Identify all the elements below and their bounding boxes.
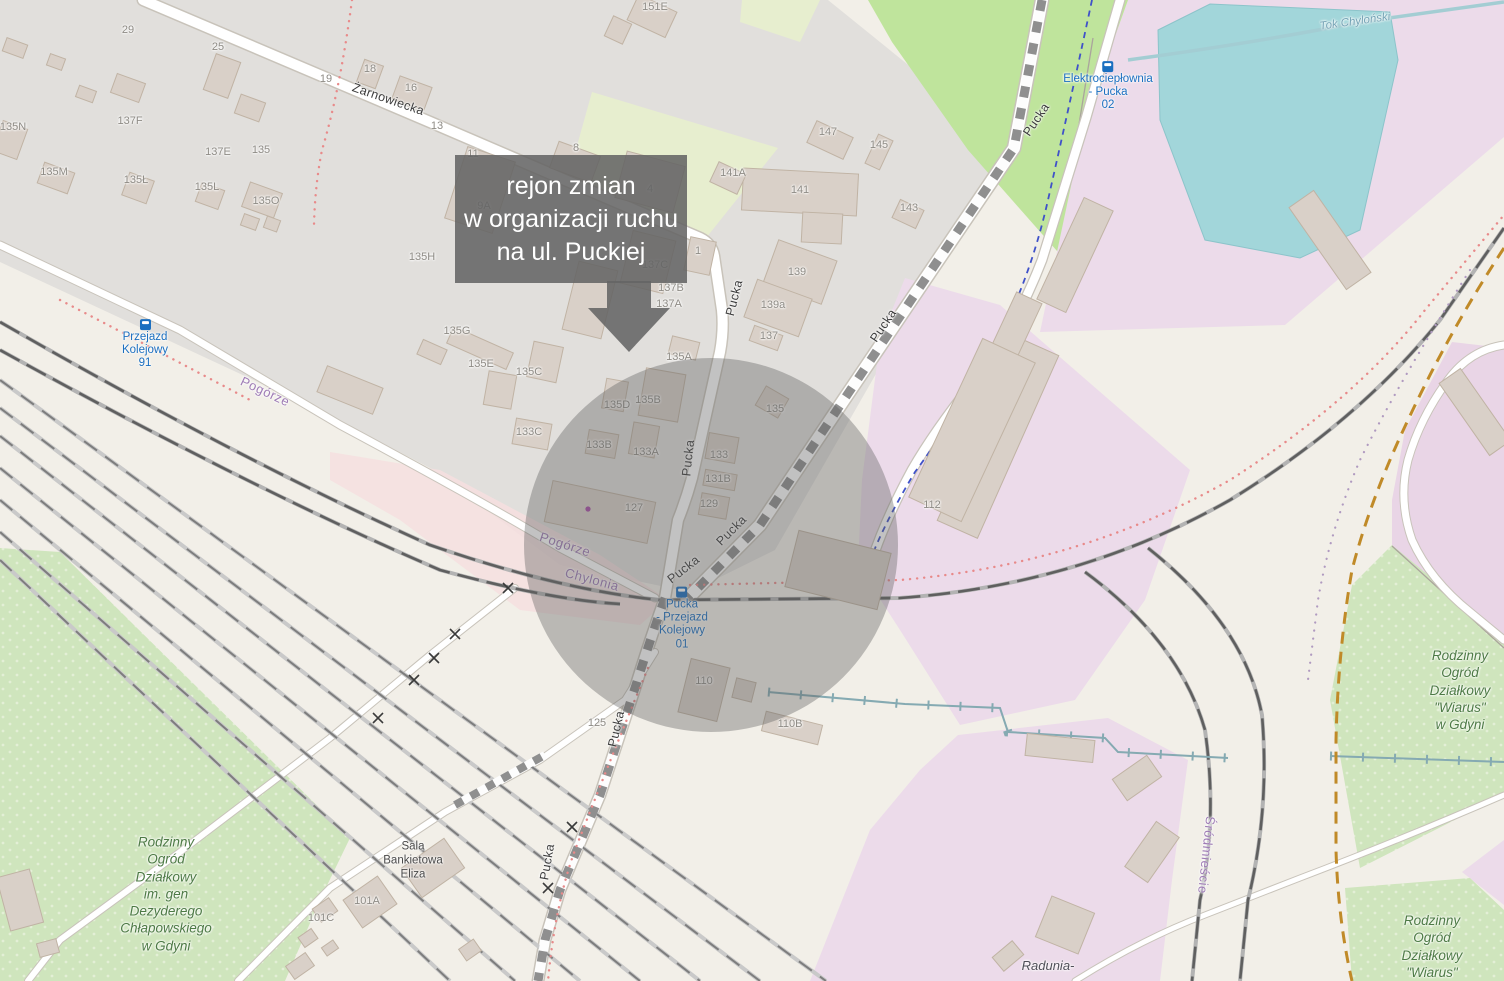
annotation-box: rejon zmian w organizacji ruchu na ul. P…	[455, 155, 687, 283]
highlight-circle-overlay	[524, 358, 898, 732]
allotment-corner	[1345, 878, 1504, 981]
building-footprint	[741, 168, 858, 216]
building-footprint	[512, 418, 552, 450]
building-footprint	[801, 212, 843, 244]
building-footprint	[483, 371, 516, 409]
map-viewport[interactable]: 292519181613137F137E135135N135M135Ł135L1…	[0, 0, 1504, 981]
annotation-line-2: w organizacji ruchu	[464, 203, 678, 236]
annotation-line-1: rejon zmian	[506, 170, 635, 203]
annotation-line-3: na ul. Puckiej	[497, 236, 646, 269]
